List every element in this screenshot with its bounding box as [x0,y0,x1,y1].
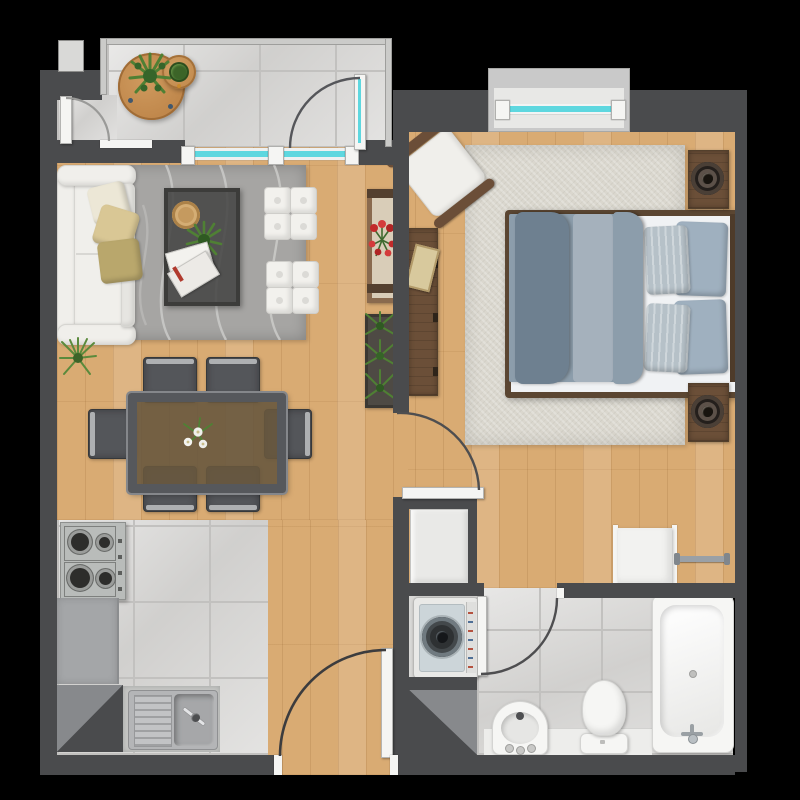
towel-rack-cap-right [724,553,730,565]
basin-knob [516,746,525,755]
entrance-door-leaf [381,648,393,758]
washing-machine [413,597,479,679]
flower-centerpiece [176,412,220,456]
bedroom-window-handle-left [495,100,510,120]
balcony-wall-right [385,38,392,147]
stool-plant [171,64,187,80]
toilet-flush-button [600,740,605,744]
kitchen-counter [57,598,119,684]
bed-duvet-fold [515,212,569,384]
speaker-top [691,162,724,195]
bath-storage-nook [409,690,477,755]
throw-pillow-olive [97,238,144,285]
towel-rack-cap-left [674,553,680,565]
wall-bathroom-top [557,583,735,598]
toilet-lid [582,680,626,736]
wall-laundry-top [409,583,484,596]
bedroom-window-glass [504,106,616,112]
balcony-plant [122,48,178,104]
refrigerator-nook [57,685,123,752]
washer-control-marks [468,606,473,668]
burner [68,530,92,554]
balcony-wall-top [100,38,392,45]
round-basin [492,701,548,755]
bed-pillow-front-top [643,225,690,295]
entry-threshold [100,140,152,148]
ottoman [266,261,293,288]
basin-knob [505,744,514,753]
gas-cooktop [60,522,126,600]
ottoman [264,187,291,214]
cooktop-knobs [118,531,122,591]
double-bed [505,210,743,398]
wall-laundry-bottom [409,677,477,690]
sideboard-knob [433,313,438,322]
washer-drum-center [436,631,448,643]
floor-plan [0,0,800,800]
ottoman [292,261,319,288]
bathroom-door-leaf [477,596,487,676]
glass-wall-cap-left [181,146,195,165]
bedroom-door-leaf [402,487,484,499]
wall-hall-right [393,497,409,755]
wall-left [40,70,57,775]
entrance-jamb-left [274,755,282,775]
burner [96,534,113,551]
glass-wall-cap-middle [268,146,284,165]
ottoman [290,187,317,214]
towel-rack-bar [677,556,727,562]
ottoman [264,213,291,240]
sideboard-knob [433,367,438,376]
utility-box [58,40,84,72]
basin-knob [527,744,536,753]
entry-door-leaf [60,96,72,144]
balcony-table-dot [168,104,173,109]
entrance-threshold-floor [282,755,390,775]
wall-right [735,90,747,772]
ottoman [266,287,293,314]
bathtub-drain [689,670,697,678]
bed-duvet-edge [613,212,643,384]
wall-bottom-left [57,755,274,775]
bathroom-door-jamb [557,588,564,598]
speaker-bottom [691,395,724,428]
bathtub [652,595,734,753]
wall-living-bedroom [393,132,409,413]
basin-faucet [516,712,524,720]
ottoman [292,287,319,314]
entrance-jamb-right [390,755,398,775]
bed-pillow-front-bottom [643,303,690,373]
grass-plant [56,334,100,380]
linen-closet [410,509,470,585]
console-end-cap-bottom [367,284,396,293]
ottoman [290,213,317,240]
burner [96,569,115,588]
balcony-door-leaf [354,74,366,150]
bathtub-faucet-knob [688,734,698,744]
wardrobe-panel [618,528,672,586]
wall-closet-right [468,509,477,583]
balcony-wall-left [100,38,107,95]
stool-dot [177,84,181,88]
burner [67,565,93,591]
sink-drain [191,713,200,722]
kitchen-sink [128,690,218,750]
balcony-door-glass [358,79,361,143]
sink-drainboard [134,695,172,747]
bedroom-window-handle-right [611,100,626,120]
wall-bottom-right [398,755,735,775]
console-end-cap-top [367,189,396,198]
bed-sheet-band [573,214,613,382]
